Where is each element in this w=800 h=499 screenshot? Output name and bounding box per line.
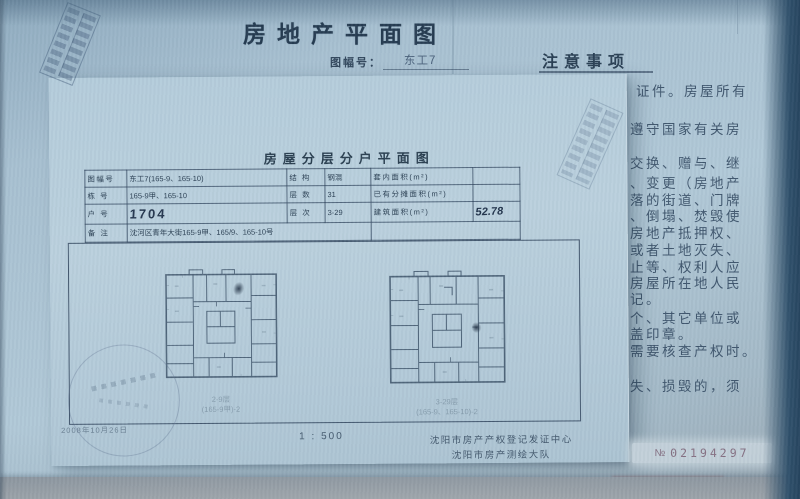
notice-line: 记。 <box>630 288 662 308</box>
agency-line-1: 沈阳市房产产权登记发证中心 <box>381 431 621 447</box>
round-stamp <box>68 344 181 457</box>
photo-edge-right <box>763 0 800 499</box>
photo-edge-bottom <box>0 477 800 499</box>
notice-title-underline <box>539 71 653 73</box>
floor-plan-left <box>163 265 280 380</box>
notice-line: 证件。房屋所有 <box>636 80 748 100</box>
notice-line: 遵守国家有关房 <box>630 118 742 138</box>
serial-number-strip: № 02194297 <box>632 443 772 463</box>
cell-label: 建筑面积(m²) <box>371 202 473 223</box>
cell-value <box>371 221 520 240</box>
cell-label: 已有分摊面积(m²) <box>371 185 473 203</box>
cell-value: 3-29 <box>325 202 371 222</box>
notice-line: 需要核查产权时。 <box>630 340 758 360</box>
cell-label: 备 注 <box>85 224 127 242</box>
scanned-photo: 房地产平面图 图幅号： 东工7 注意事项 证件。房屋所有 遵守国家有关房 交换、… <box>0 0 800 499</box>
info-table: 图幅号 东工7(165-9、165-10) 结 构 钢混 套内面积(m²) 栋 … <box>84 167 520 243</box>
cell-label: 栋 号 <box>85 187 127 204</box>
table-row: 备 注 沈河区青年大街165-9甲、165/9、165-10号 <box>85 221 520 242</box>
notice-line: 失、损毁的，须 <box>630 375 742 395</box>
photo-edge-left <box>0 0 6 499</box>
sheet-number-value: 东工7 <box>404 52 436 68</box>
cell-label: 套内面积(m²) <box>371 168 473 186</box>
cell-value: 165-9甲、165-10 <box>127 186 287 204</box>
cell-label: 图幅号 <box>85 170 127 187</box>
handwritten-area-value: 52.78 <box>475 205 504 218</box>
agency-line-2: 沈阳市房产测绘大队 <box>381 446 621 462</box>
cell-value <box>473 184 520 201</box>
notice-line: 交换、赠与、继 <box>630 152 742 172</box>
cell-label: 结 构 <box>287 169 325 186</box>
sheet-number-label: 图幅号： <box>330 54 382 70</box>
cell-label: 层 数 <box>287 186 325 203</box>
serial-prefix: № <box>654 448 665 459</box>
cell-value: 31 <box>325 185 371 202</box>
photo-edge-top <box>0 0 800 26</box>
handwritten-unit-number: 1704 <box>129 206 167 221</box>
cell-value: 1704 <box>127 203 287 224</box>
plan-caption-left: 2-9层 (165-9甲)-2 <box>171 394 271 415</box>
cell-value: 52.78 <box>473 201 520 221</box>
sheet-number-underline <box>383 69 469 70</box>
floor-plan-sheet: 房屋分层分户平面图 图幅号 东工7(165-9、165-10) 结 构 钢混 套… <box>49 74 630 466</box>
cell-value: 沈河区青年大街165-9甲、165/9、165-10号 <box>127 222 371 242</box>
cell-value: 东工7(165-9、165-10) <box>127 169 287 187</box>
cell-label: 层 次 <box>287 203 325 223</box>
floor-plan-sheet-title: 房屋分层分户平面图 <box>199 147 499 168</box>
cell-value <box>473 167 520 184</box>
serial-number: 02194297 <box>670 446 749 460</box>
cell-label: 户 号 <box>85 204 127 224</box>
cell-value: 钢混 <box>325 168 371 185</box>
plan-caption-right: 3-29层 (165-9、165-10)-2 <box>397 397 497 418</box>
ink-mark <box>470 321 482 334</box>
notice-title: 注意事项 <box>542 48 630 72</box>
map-scale: 1 : 500 <box>299 431 344 442</box>
floor-plan-right <box>387 267 508 386</box>
